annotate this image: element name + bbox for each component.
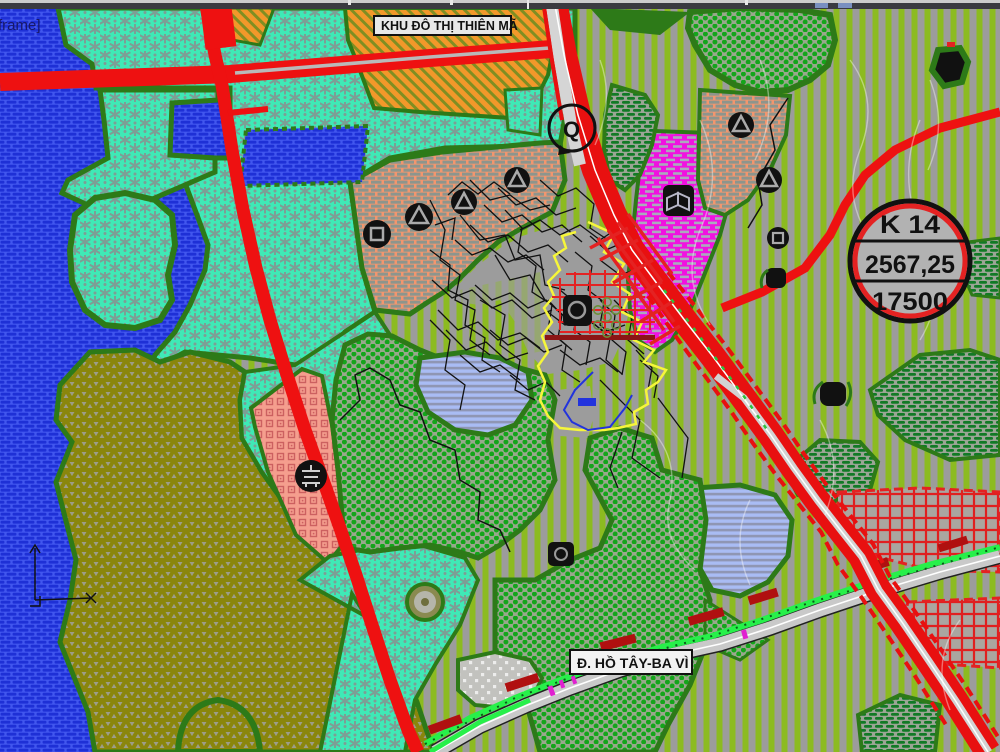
svg-text:K 14: K 14 [880,211,940,239]
svg-text:2567,25: 2567,25 [865,251,955,279]
svg-text:KHU ĐÔ THỊ THIÊN MÃ: KHU ĐÔ THỊ THIÊN MÃ [381,18,518,33]
svg-text:frame]: frame] [0,17,41,34]
svg-text:Q: Q [563,117,580,142]
svg-text:Đ. HỒ TÂY-BA VÌ: Đ. HỒ TÂY-BA VÌ [577,654,689,671]
svg-text:17500: 17500 [872,288,948,316]
